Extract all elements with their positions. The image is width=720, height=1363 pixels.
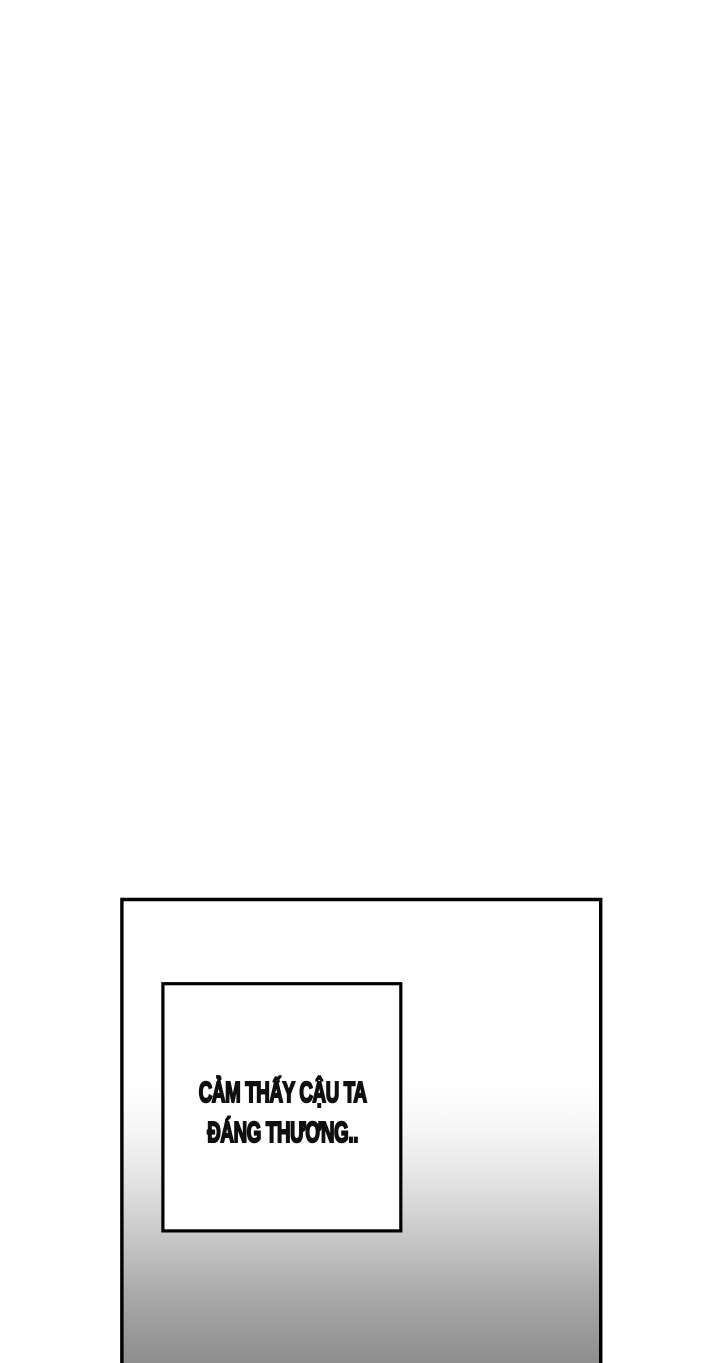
svg-text:ĐÁNG THƯƠNG..: ĐÁNG THƯƠNG.. bbox=[207, 1116, 358, 1149]
svg-text:CẢM THẤY CẬU TA: CẢM THẤY CẬU TA bbox=[199, 1075, 367, 1109]
